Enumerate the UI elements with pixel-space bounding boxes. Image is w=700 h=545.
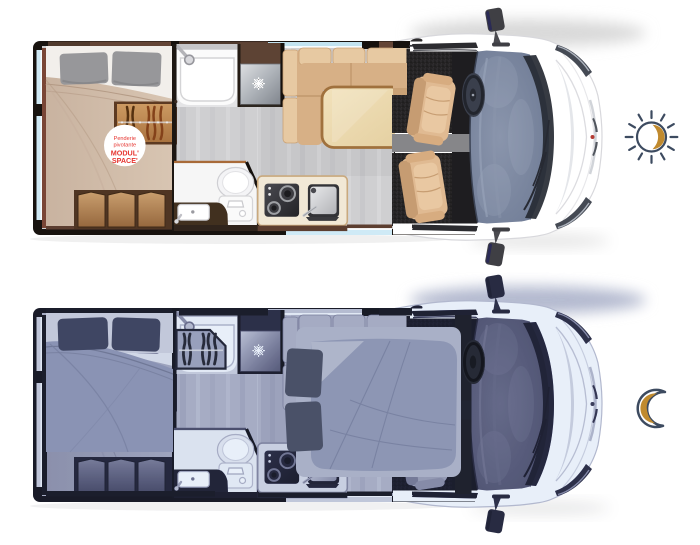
svg-text:SPACE': SPACE': [112, 156, 138, 165]
svg-text:Penderie: Penderie: [114, 136, 136, 142]
